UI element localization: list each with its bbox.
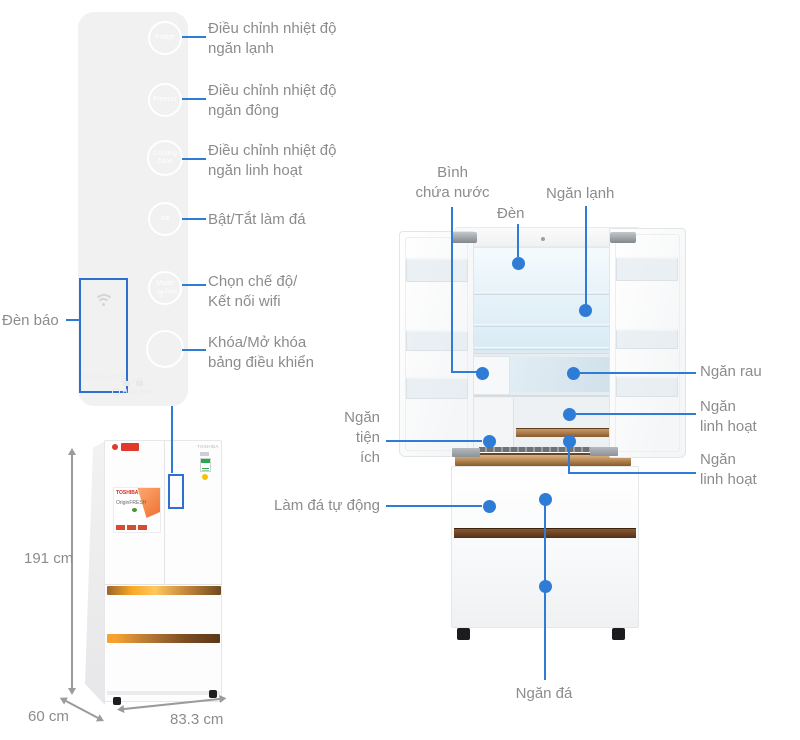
- label-cooling-zone: Điều chỉnh nhiệt độ ngăn linh hoạt: [208, 141, 393, 181]
- glass-shelf: [470, 324, 611, 327]
- fridge-button-label: Fridge: [155, 34, 175, 42]
- label-dot: [512, 257, 525, 270]
- glass-shelf: [470, 292, 611, 295]
- label-dot: [579, 304, 592, 317]
- caster-wheel: [209, 690, 217, 698]
- door-bin: [406, 258, 468, 282]
- label-line: Ngăn: [300, 408, 380, 428]
- label-dot: [476, 367, 489, 380]
- label-mode: Chọn chế độ/ Kết nối wifi: [208, 272, 393, 312]
- hold-row: Hold 3sec: [78, 388, 188, 396]
- leader-line: [66, 319, 79, 321]
- control-panel-location-outline: [168, 474, 184, 509]
- label-line: ngăn đông: [208, 101, 393, 121]
- red-promo-badge: [121, 443, 139, 451]
- label-line: ích: [300, 448, 380, 468]
- leader-line: [580, 372, 696, 374]
- freezer-button-label: Freezer: [153, 96, 177, 104]
- leader-line: [576, 413, 696, 415]
- leader-line: [182, 98, 206, 100]
- label-line: Điều chỉnh nhiệt độ: [208, 141, 393, 161]
- door-split-line: [164, 441, 165, 584]
- height-dimension-label: 191 cm: [24, 549, 84, 569]
- wifi-icon: [94, 294, 114, 308]
- mode-button: Mode 3sec: [148, 271, 182, 305]
- door-bin: [406, 377, 468, 399]
- leader-line: [182, 36, 206, 38]
- ice-button-label: Ice: [160, 215, 169, 223]
- caster-wheel: [457, 628, 470, 640]
- depth-dimension-label: 60 cm: [28, 707, 88, 727]
- lock-separator: /: [132, 377, 134, 386]
- label-line: Chọn chế độ/: [208, 272, 393, 292]
- label-cooler: Ngăn lạnh: [546, 184, 636, 204]
- door-hinge: [610, 232, 636, 243]
- panel-footer: / Hold 3sec: [78, 376, 188, 396]
- width-dimension-label: 83.3 cm: [170, 710, 250, 730]
- label-dot: [483, 500, 496, 513]
- mode-button-label: Mode: [156, 280, 174, 288]
- label-line: Ngăn: [700, 397, 790, 417]
- product-diagram: Fridge Freezer Cooling Zone Ice Mode 3se…: [0, 0, 800, 740]
- connector-line: [171, 406, 173, 473]
- label-line: chứa nước: [400, 183, 505, 203]
- label-line: bảng điều khiển: [208, 353, 393, 373]
- label-lock: Khóa/Mở khóa bảng điều khiển: [208, 333, 393, 373]
- label-utility: Ngăn tiện ích: [300, 408, 380, 468]
- label-auto-ice: Làm đá tự động: [252, 496, 380, 516]
- leader-line: [451, 207, 453, 373]
- sensor-dot: [541, 237, 545, 241]
- label-freezer: Ngăn đá: [495, 684, 593, 704]
- vent-strip: [479, 447, 605, 452]
- energy-label: [200, 458, 211, 472]
- fridge-front-face: TOSHIBA OriginFRESH TOSHIBA: [104, 440, 222, 702]
- caster-wheel: [113, 697, 121, 705]
- label-freezer-temp: Điều chỉnh nhiệt độ ngăn đông: [208, 81, 393, 121]
- label-line: Kết nối wifi: [208, 292, 393, 312]
- leader-line: [568, 447, 570, 474]
- door-bottom-line: [105, 584, 221, 585]
- label-line: Khóa/Mở khóa: [208, 333, 393, 353]
- leader-line: [182, 218, 206, 220]
- fridge-plinth: [107, 691, 220, 695]
- label-line: linh hoạt: [700, 417, 790, 437]
- leader-line: [182, 158, 206, 160]
- yellow-sticker: [202, 474, 208, 480]
- label-line: Bật/Tắt làm đá: [208, 210, 393, 230]
- red-sticker-dot: [112, 444, 118, 450]
- leader-line: [182, 284, 206, 286]
- label-indicator-light: Đèn báo: [2, 311, 66, 331]
- door-hinge: [451, 232, 477, 243]
- door-bin: [616, 329, 678, 349]
- leader-line: [386, 440, 482, 442]
- label-line: ngăn linh hoạt: [208, 161, 393, 181]
- leader-line: [568, 472, 696, 474]
- drawer-light-strip-2: [107, 634, 220, 643]
- leader-line: [451, 371, 477, 373]
- drawer-clear-front: [510, 357, 620, 392]
- door-poster: TOSHIBA OriginFRESH: [113, 487, 161, 533]
- leader-line: [182, 349, 206, 351]
- label-dot: [483, 435, 496, 448]
- leader-line: [517, 224, 519, 257]
- leader-line: [386, 505, 482, 507]
- label-flex-2: Ngăn linh hoạt: [700, 450, 790, 490]
- door-bin: [616, 376, 678, 397]
- label-veg-drawer: Ngăn rau: [700, 362, 790, 382]
- label-flex-1: Ngăn linh hoạt: [700, 397, 790, 437]
- label-fridge-temp: Điều chỉnh nhiệt độ ngăn lạnh: [208, 19, 393, 59]
- garnish-image: [132, 508, 137, 512]
- brand-logo-text: TOSHIBA: [197, 444, 219, 449]
- cooling-zone-label-1: Cooling: [153, 150, 177, 158]
- label-light: Đèn: [497, 204, 542, 224]
- mode-hold-time: 3sec: [164, 288, 177, 296]
- lock-button: [146, 330, 184, 368]
- hold-text: Hold 3sec: [122, 389, 153, 396]
- padlock-open-icon: [123, 381, 130, 386]
- label-line: Ngăn: [700, 450, 790, 470]
- hinge-plate: [452, 448, 480, 457]
- label-dot: [567, 367, 580, 380]
- poster-feature-row: [116, 525, 147, 530]
- cooling-zone-label-2: Zone: [157, 158, 173, 166]
- label-dot: [563, 435, 576, 448]
- hinge-plate: [590, 447, 618, 456]
- label-dot: [539, 493, 552, 506]
- door-small-icon: [200, 452, 209, 456]
- door-bin: [616, 257, 678, 281]
- drawer-light-strip-1: [107, 586, 221, 595]
- door-bin: [406, 330, 468, 351]
- label-ice: Bật/Tắt làm đá: [208, 210, 393, 230]
- padlock-closed-icon: [136, 381, 143, 386]
- fridge-side-face: [85, 441, 105, 705]
- label-line: Điều chỉnh nhiệt độ: [208, 81, 393, 101]
- label-line: Điều chỉnh nhiệt độ: [208, 19, 393, 39]
- cooler-interior: [469, 247, 612, 353]
- wifi-icon: [156, 290, 161, 294]
- label-dot: [563, 408, 576, 421]
- mode-button-sub: 3sec: [153, 288, 177, 296]
- label-line: tiện: [300, 428, 380, 448]
- clock-icon: [112, 388, 120, 396]
- freezer-temp-button: Freezer: [148, 83, 182, 117]
- control-panel: Fridge Freezer Cooling Zone Ice Mode 3se…: [78, 12, 188, 406]
- label-dot: [539, 580, 552, 593]
- label-water-tank: Bình chứa nước: [400, 163, 505, 203]
- poster-brand-text: TOSHIBA: [116, 490, 138, 496]
- open-right-door: [609, 228, 686, 458]
- open-left-door: [399, 231, 474, 457]
- glass-shelf: [470, 347, 611, 350]
- height-dimension-arrow: [71, 455, 73, 688]
- lock-icons-row: /: [78, 376, 188, 386]
- cooling-zone-button: Cooling Zone: [147, 140, 183, 176]
- label-line: Bình: [400, 163, 505, 183]
- poster-title-text: OriginFRESH: [116, 500, 146, 506]
- label-line: ngăn lạnh: [208, 39, 393, 59]
- caster-wheel: [612, 628, 625, 640]
- ice-button: Ice: [148, 202, 182, 236]
- leader-line: [585, 206, 587, 305]
- fridge-temp-button: Fridge: [148, 21, 182, 55]
- label-line: linh hoạt: [700, 470, 790, 490]
